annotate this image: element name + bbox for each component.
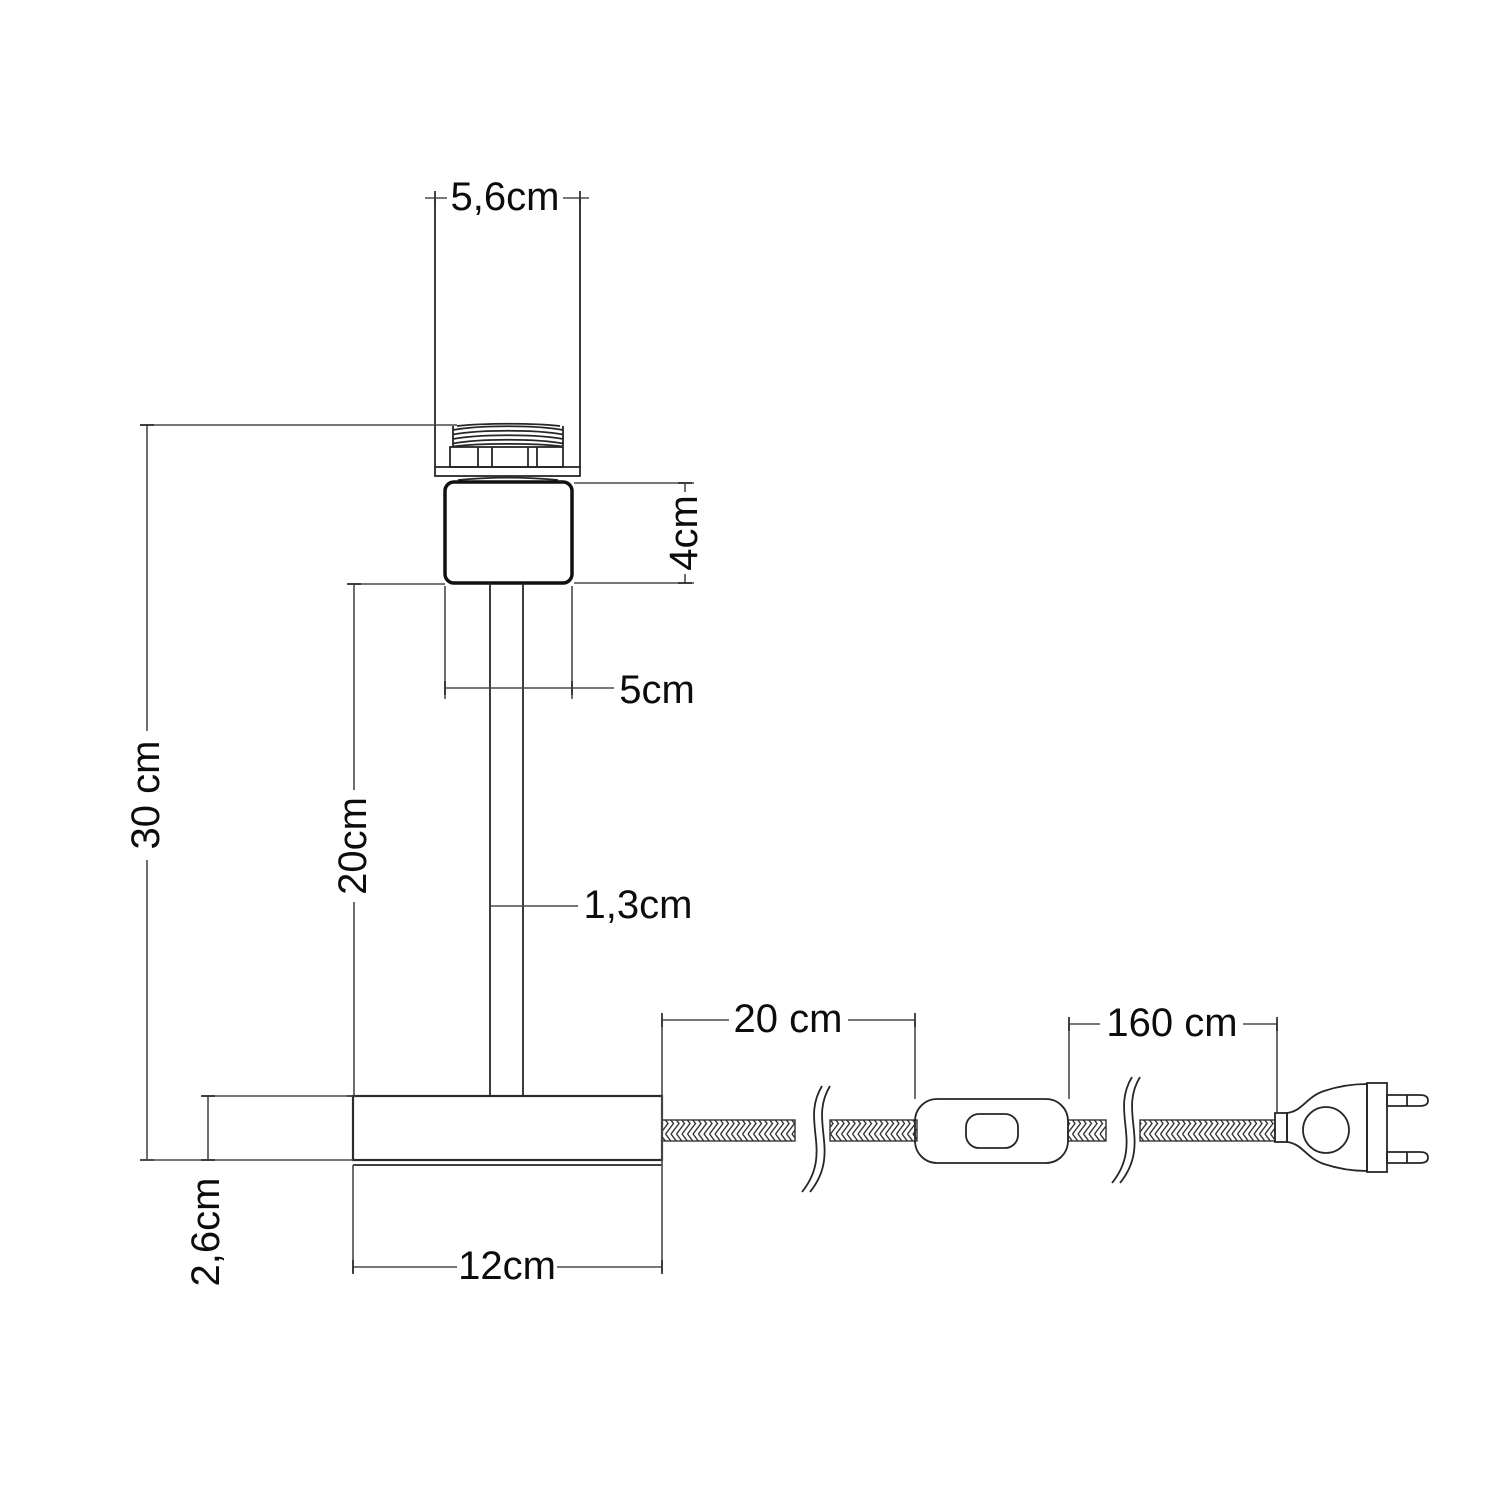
- cable-to-switch-label: 20 cm: [734, 997, 843, 1041]
- drawing-canvas: 5,6cm 4cm 5cm 1,3cm 30 cm: [0, 0, 1500, 1500]
- braided-cable: [662, 1120, 1275, 1141]
- overall-height-label: 30 cm: [124, 741, 168, 850]
- stem-diameter-label: 1,3cm: [584, 883, 693, 927]
- dim-overall-height: 30 cm: [124, 425, 457, 1160]
- plug-finger-hole: [1303, 1107, 1349, 1153]
- base-width-label: 12cm: [458, 1244, 556, 1288]
- stem-tube: [490, 583, 523, 1096]
- cable-break-mark-left: [802, 1086, 830, 1192]
- inline-switch: [915, 1099, 1068, 1163]
- base-height-label: 2,6cm: [184, 1178, 228, 1287]
- dim-holder-width: 5cm: [445, 586, 695, 712]
- dim-cable-to-plug: 160 cm: [1069, 1001, 1277, 1112]
- lamp-base: [353, 1096, 662, 1165]
- cable-break-mark-right: [1112, 1077, 1140, 1183]
- holder-thread: [453, 424, 563, 447]
- switch-rocker-button: [966, 1114, 1018, 1148]
- dim-shade-width: 5,6cm: [425, 175, 589, 219]
- holder-width-label: 5cm: [619, 668, 695, 712]
- stem-height-label: 20cm: [331, 797, 375, 895]
- cable-to-plug-label: 160 cm: [1106, 1001, 1237, 1045]
- hex-ring-nut: [450, 447, 563, 467]
- dim-stem-height: 20cm: [331, 584, 445, 1096]
- lamp-holder-body: [445, 482, 572, 583]
- plug-body: [1287, 1084, 1367, 1171]
- plug-cable-grip: [1275, 1113, 1287, 1142]
- lamp-dimension-drawing: 5,6cm 4cm 5cm 1,3cm 30 cm: [0, 0, 1500, 1500]
- euro-plug: [1275, 1083, 1428, 1172]
- dim-holder-height: 4cm: [574, 483, 706, 583]
- dim-stem-diameter: 1,3cm: [491, 883, 692, 927]
- shade-ring-flange: [435, 467, 580, 480]
- plug-face-plate: [1367, 1083, 1387, 1172]
- dim-base-height: 2,6cm: [140, 1096, 353, 1286]
- dim-cable-to-switch: 20 cm: [662, 997, 915, 1099]
- shade-width-label: 5,6cm: [451, 175, 560, 219]
- holder-height-label: 4cm: [662, 495, 706, 571]
